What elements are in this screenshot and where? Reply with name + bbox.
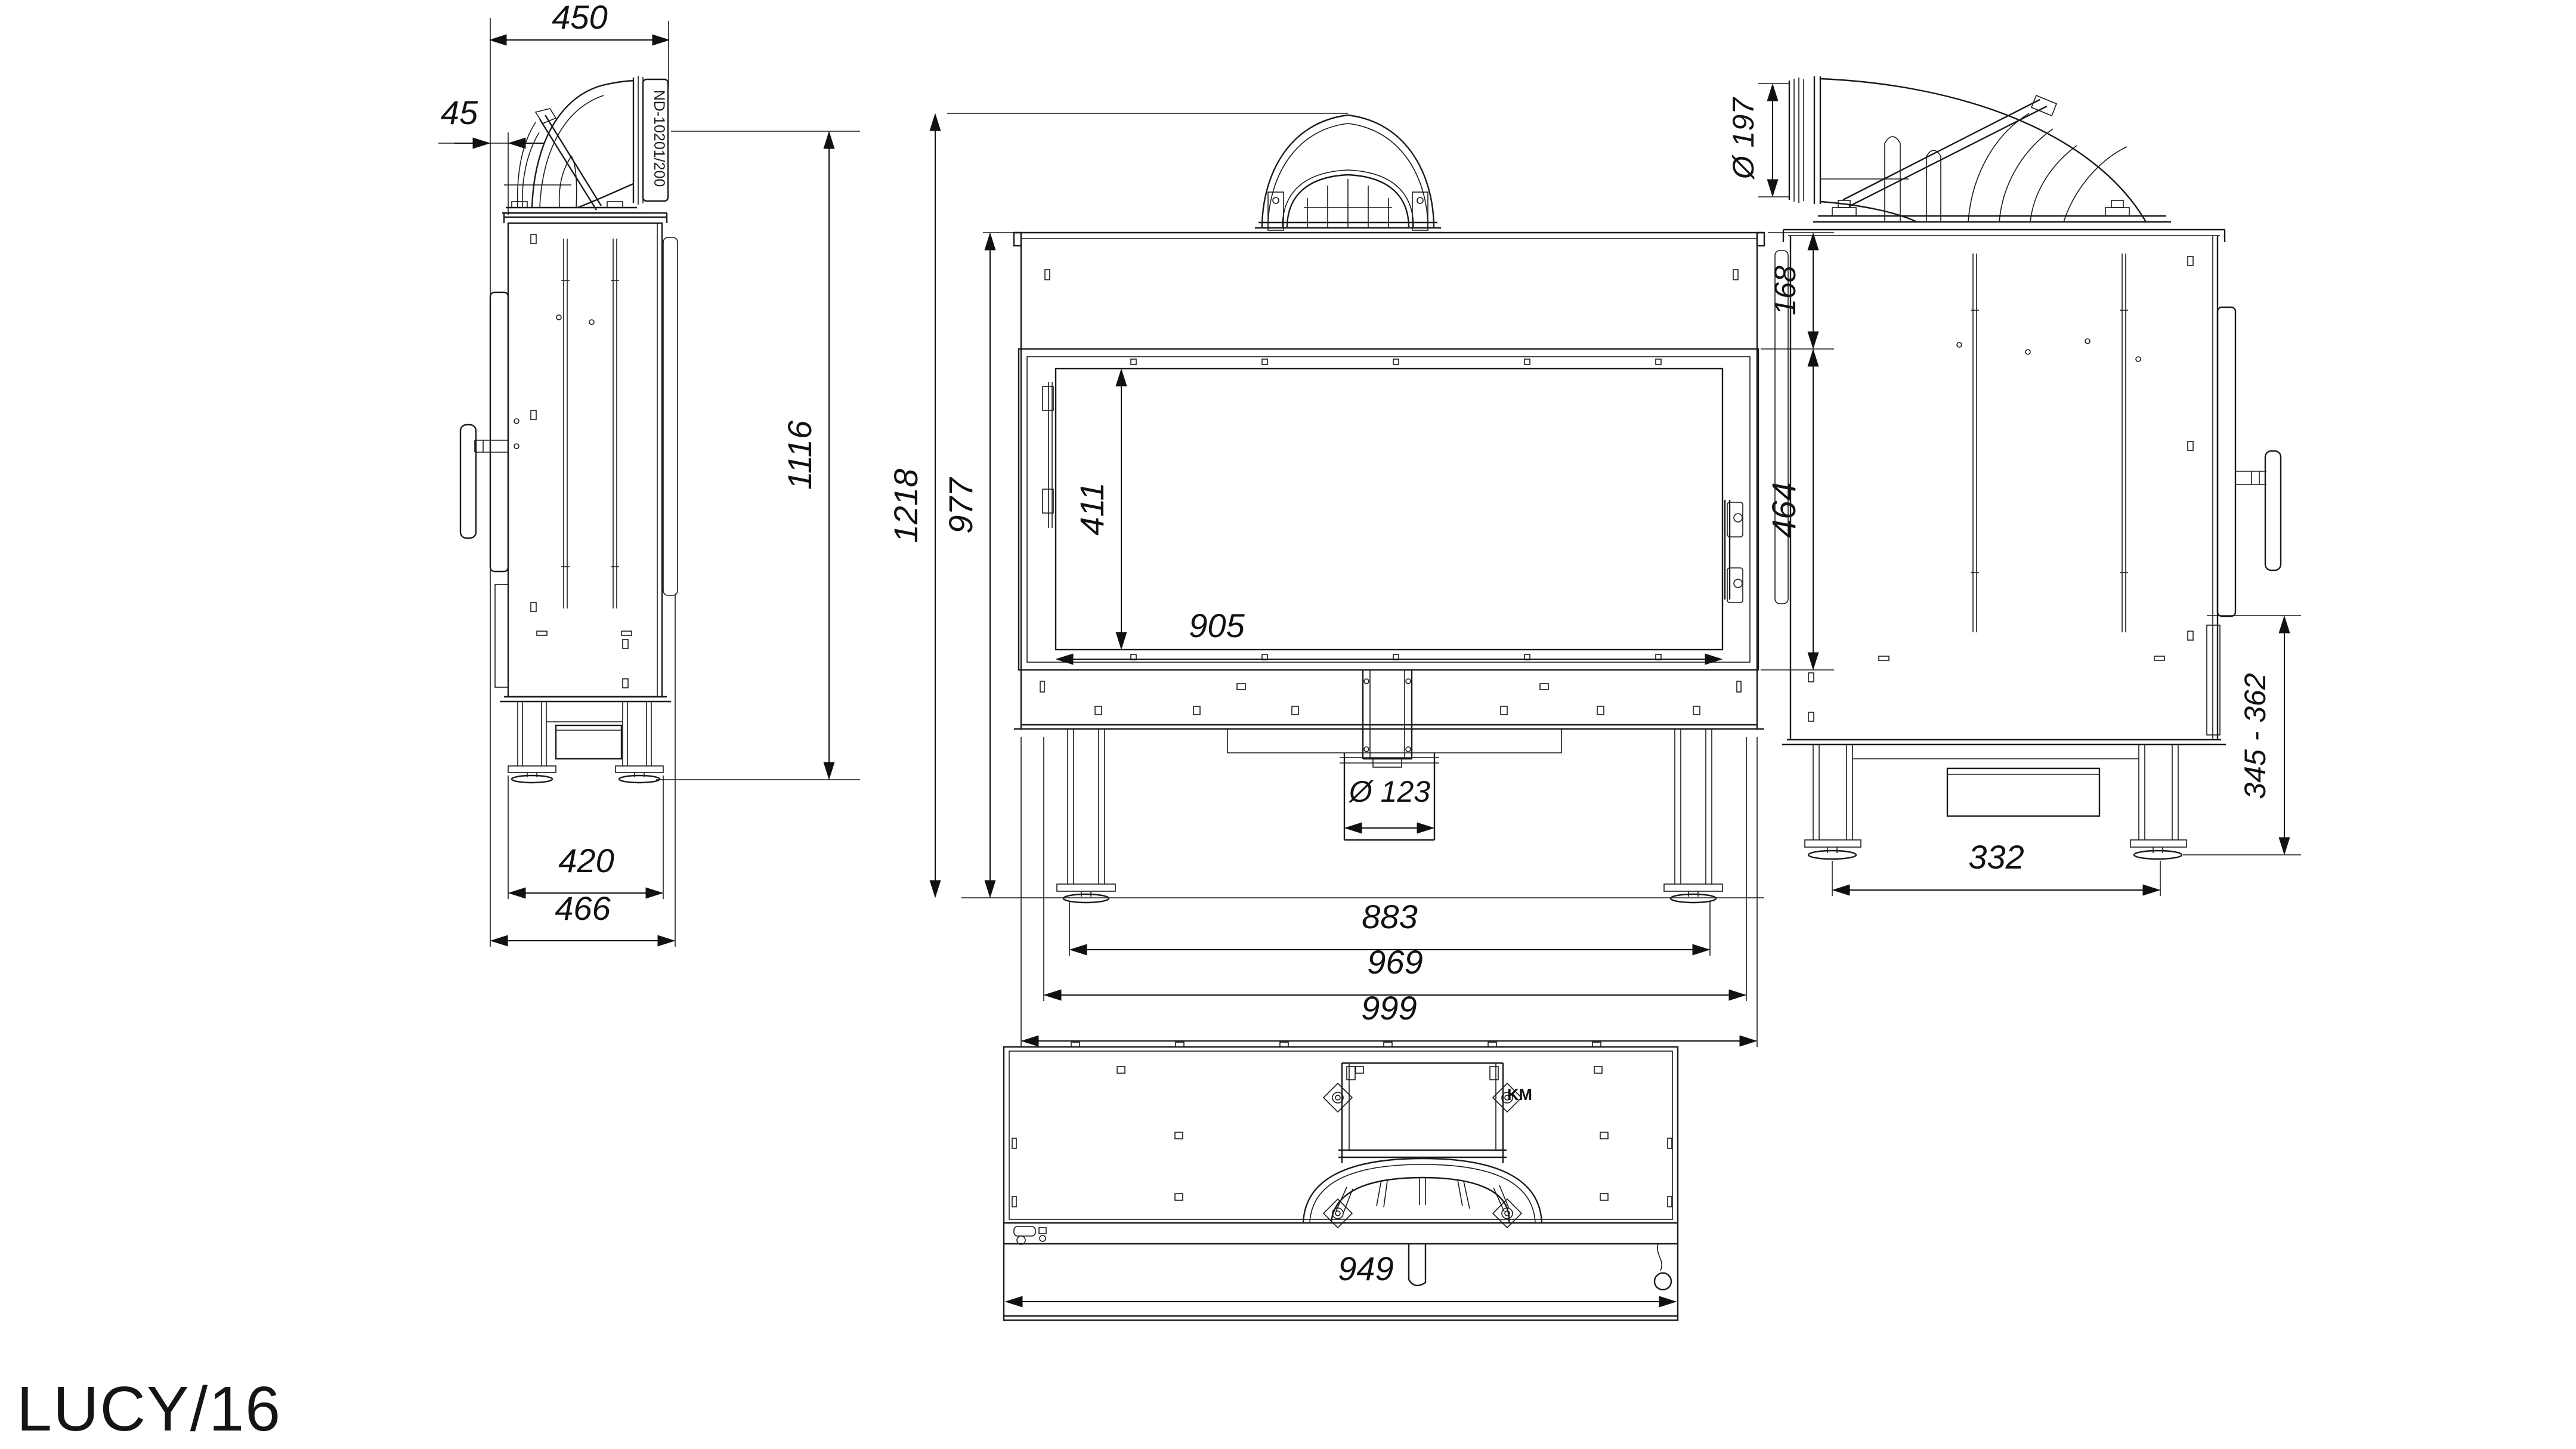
dim-949-label: 949 [1338, 1250, 1393, 1287]
dim-123: Ø 123 [1346, 775, 1433, 828]
dim-420-label: 420 [558, 842, 614, 879]
dim-905: 905 [1057, 607, 1721, 659]
dim-420: 420 [508, 776, 663, 899]
front-view: 1218 977 168 464 411 905 Ø 123 [887, 113, 1834, 1047]
dim-332: 332 [1832, 838, 2160, 896]
model-title: LUCY/16 [17, 1374, 282, 1444]
duct-part-label: ND-10201/200 [651, 90, 667, 187]
base-left [500, 697, 671, 783]
dim-45: 45 [438, 94, 544, 215]
dim-411-label: 411 [1073, 482, 1111, 535]
page: { "title": { "model_label": "LUCY/16" },… [0, 0, 2576, 1449]
dim-466: 466 [491, 594, 675, 947]
dim-345-362-label: 345 - 362 [2238, 673, 2272, 799]
base-front [1057, 729, 1723, 903]
dim-197: Ø 197 [1727, 84, 1789, 197]
dim-1116-label: 1116 [781, 420, 818, 490]
collar-brand-mark: KM [1507, 1086, 1532, 1104]
dim-464: 464 [1761, 350, 1834, 670]
dim-969-label: 969 [1367, 943, 1422, 981]
dim-45-label: 45 [441, 94, 478, 131]
body-left [460, 213, 678, 697]
technical-drawing: ND-10201/200 [0, 0, 2576, 1449]
flue-elbow-right [1789, 76, 2171, 222]
dim-466-label: 466 [555, 889, 611, 927]
dim-411: 411 [1073, 370, 1121, 648]
dim-168: 168 [1761, 233, 1834, 349]
dim-905-label: 905 [1189, 607, 1245, 644]
body-front [1014, 233, 1764, 767]
body-right [1775, 230, 2281, 740]
dim-197-label: Ø 197 [1727, 97, 1760, 180]
flue-elbow-left: ND-10201/200 [502, 76, 668, 213]
dim-123-label: Ø 123 [1348, 775, 1430, 808]
dim-345-362: 345 - 362 [2183, 616, 2301, 855]
dim-1218-label: 1218 [887, 469, 924, 543]
dim-949: 949 [1006, 1250, 1675, 1302]
flue-collar-top: KM [1303, 1063, 1542, 1228]
dim-1116: 1116 [656, 131, 860, 780]
dim-977-label: 977 [942, 477, 979, 533]
side-view-left: ND-10201/200 [438, 0, 860, 947]
dim-999-label: 999 [1361, 989, 1417, 1027]
dim-450-label: 450 [552, 0, 607, 36]
dim-450: 450 [490, 0, 669, 947]
top-view: KM 949 [1004, 1042, 1678, 1320]
dim-332-label: 332 [1968, 838, 2024, 876]
chimney-cowl [1255, 115, 1441, 230]
dim-883-label: 883 [1362, 898, 1417, 935]
dim-168-label: 168 [1768, 265, 1802, 316]
dim-977: 977 [942, 233, 1021, 897]
dim-464-label: 464 [1765, 482, 1802, 537]
